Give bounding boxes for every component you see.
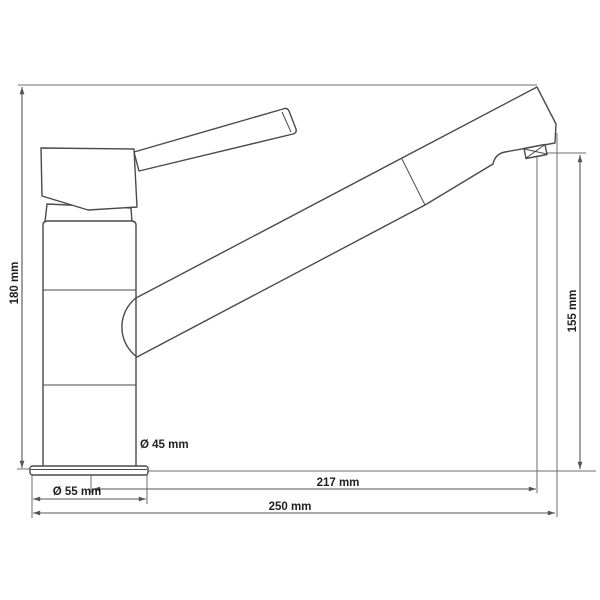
label-outlet-height: 155 mm — [567, 290, 579, 333]
label-base-diameter: Ø 55 mm — [53, 486, 102, 498]
drawing-canvas: 180 mm 155 mm Ø 45 mm Ø 55 mm 217 mm 250… — [0, 0, 600, 600]
faucet-base-flange — [30, 466, 148, 475]
label-total-depth: 250 mm — [269, 501, 312, 513]
spout-seam — [402, 159, 425, 205]
label-total-height: 180 mm — [9, 262, 21, 305]
faucet-spout — [122, 87, 556, 357]
faucet-handle-housing — [41, 148, 137, 210]
faucet-outline — [30, 87, 556, 475]
label-spout-reach: 217 mm — [317, 477, 360, 489]
faucet-lever-handle — [134, 108, 296, 171]
label-body-diameter: Ø 45 mm — [140, 439, 189, 451]
faucet-technical-drawing: 180 mm 155 mm Ø 45 mm Ø 55 mm 217 mm 250… — [0, 0, 600, 600]
faucet-body-cylinder — [43, 221, 136, 467]
